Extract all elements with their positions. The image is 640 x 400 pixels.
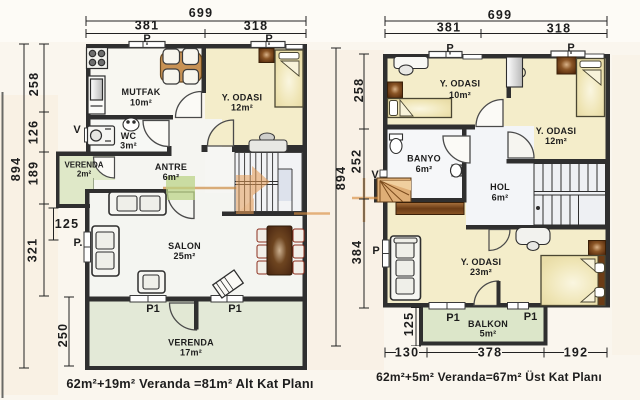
svg-text:VERENDA: VERENDA [168, 338, 214, 348]
svg-text:V: V [371, 169, 379, 181]
svg-text:62m²+5m² Veranda=67m² Üst Kat: 62m²+5m² Veranda=67m² Üst Kat Planı [376, 369, 602, 384]
svg-text:250: 250 [56, 323, 70, 347]
svg-text:10m²: 10m² [130, 98, 152, 108]
svg-text:258: 258 [27, 72, 41, 96]
svg-text:2m²: 2m² [77, 170, 92, 179]
svg-text:23m²: 23m² [470, 267, 492, 277]
svg-text:BALKON: BALKON [468, 319, 508, 329]
svg-text:6m²: 6m² [163, 172, 180, 182]
svg-text:252: 252 [350, 149, 364, 173]
svg-text:25m²: 25m² [173, 251, 195, 261]
svg-text:SALON: SALON [168, 241, 201, 251]
svg-text:ANTRE: ANTRE [155, 162, 187, 172]
svg-text:3m²: 3m² [120, 141, 137, 151]
svg-text:P1: P1 [146, 303, 159, 315]
svg-text:6m²: 6m² [492, 193, 509, 203]
svg-text:HOL: HOL [490, 182, 510, 192]
svg-text:894: 894 [9, 157, 23, 181]
svg-text:378: 378 [478, 346, 502, 360]
svg-text:126: 126 [27, 120, 41, 144]
svg-text:699: 699 [189, 6, 213, 20]
svg-text:318: 318 [244, 19, 268, 33]
svg-text:17m²: 17m² [180, 348, 202, 358]
svg-text:384: 384 [350, 240, 364, 264]
svg-text:12m²: 12m² [545, 136, 567, 146]
svg-text:381: 381 [135, 19, 159, 33]
svg-text:258: 258 [352, 78, 366, 102]
svg-text:BANYO: BANYO [407, 154, 441, 164]
svg-text:699: 699 [488, 8, 512, 22]
svg-text:MUTFAK: MUTFAK [122, 87, 161, 97]
svg-text:WC: WC [121, 131, 137, 141]
svg-text:62m²+19m² Veranda =81m² Alt Ka: 62m²+19m² Veranda =81m² Alt Kat Planı [66, 376, 313, 391]
svg-text:Y. ODASI: Y. ODASI [461, 257, 502, 267]
svg-text:321: 321 [26, 238, 40, 262]
svg-text:318: 318 [547, 22, 571, 36]
svg-text:894: 894 [334, 166, 348, 190]
svg-text:12m²: 12m² [231, 103, 253, 113]
svg-text:381: 381 [437, 21, 461, 35]
svg-text:P1: P1 [228, 303, 241, 315]
svg-text:5m²: 5m² [480, 329, 497, 339]
svg-text:192: 192 [564, 346, 588, 360]
svg-text:P1: P1 [446, 312, 459, 324]
svg-text:Y. ODASI: Y. ODASI [440, 79, 481, 89]
svg-text:130: 130 [395, 346, 419, 360]
svg-text:V: V [73, 124, 81, 136]
svg-text:6m²: 6m² [416, 164, 433, 174]
svg-text:P1: P1 [524, 311, 537, 323]
svg-text:10m²: 10m² [449, 90, 471, 100]
svg-text:P.: P. [74, 237, 83, 249]
svg-text:VERENDA: VERENDA [64, 161, 103, 170]
svg-text:Y. ODASI: Y. ODASI [222, 93, 263, 103]
svg-text:125: 125 [402, 312, 416, 336]
svg-text:P: P [372, 245, 379, 257]
svg-text:Y. ODASI: Y. ODASI [536, 126, 577, 136]
svg-text:189: 189 [27, 161, 41, 185]
svg-text:125: 125 [55, 217, 79, 231]
